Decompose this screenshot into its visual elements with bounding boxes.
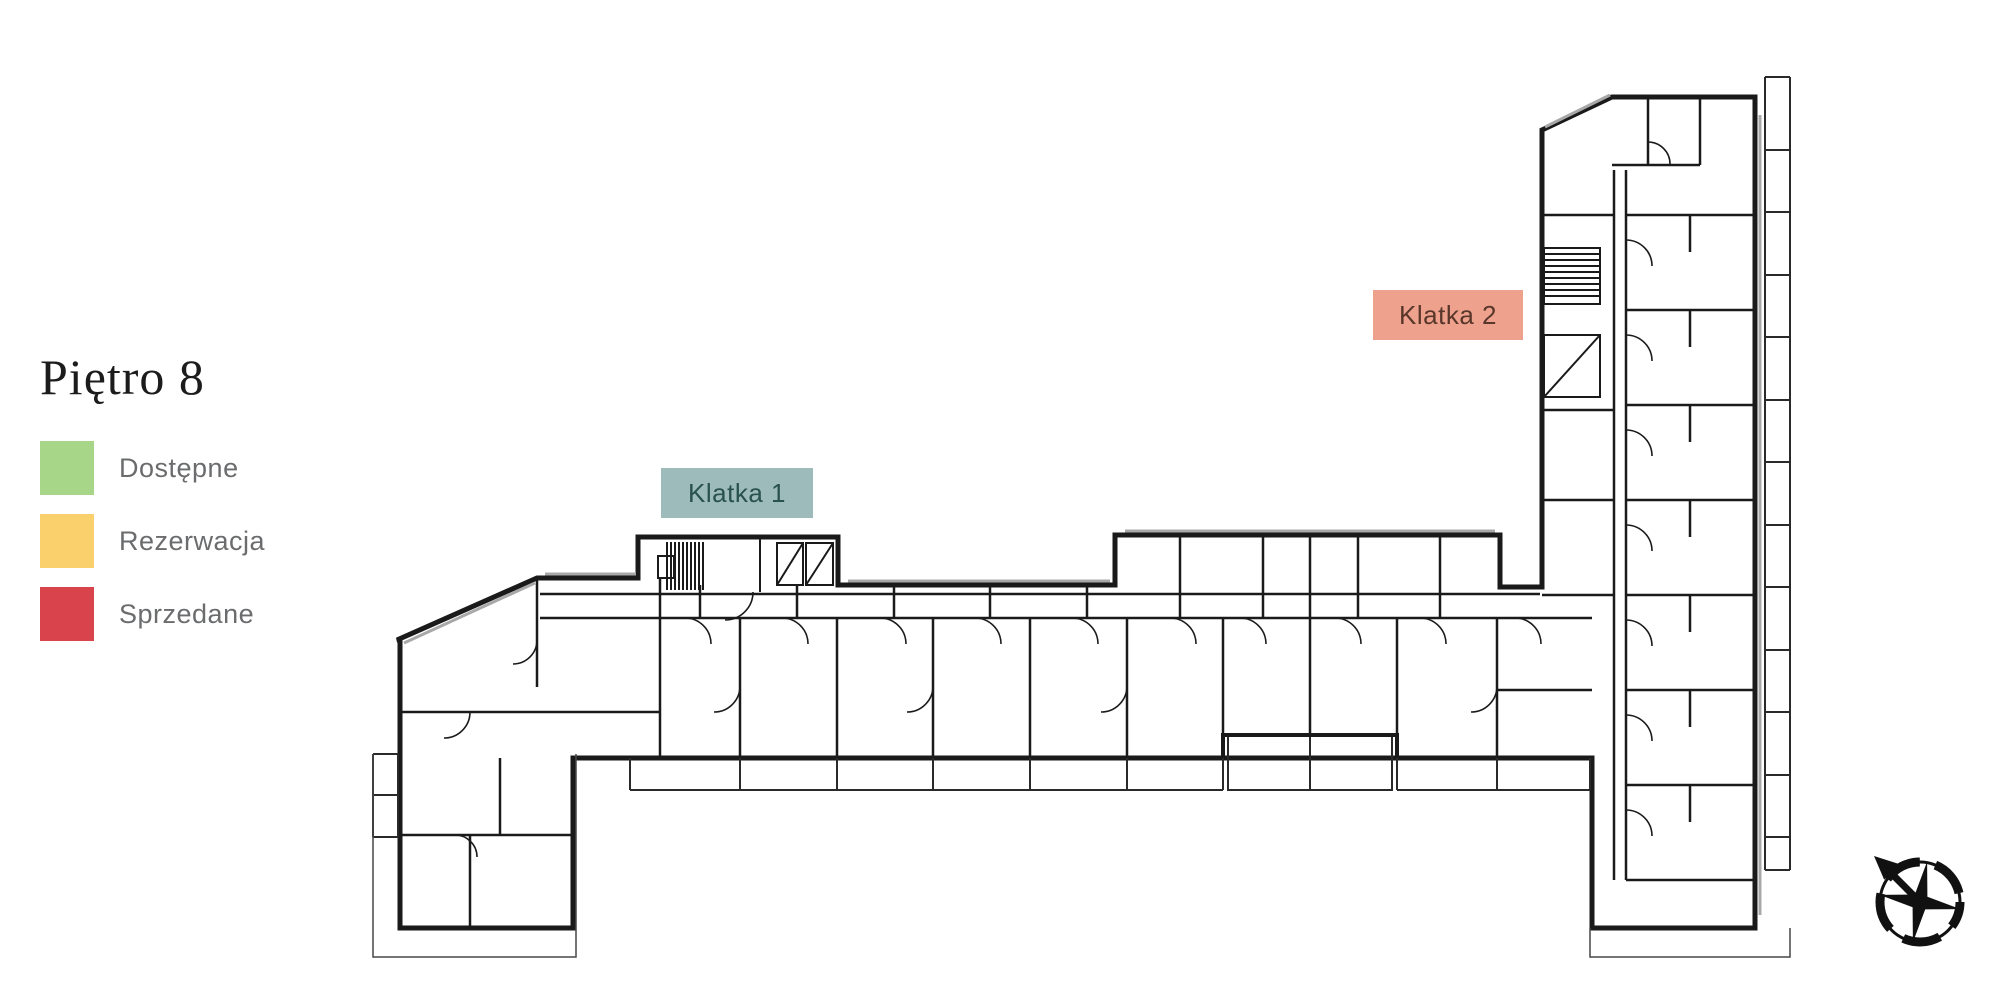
compass-icon (1866, 836, 1970, 952)
floor-plan: Klatka 1 Klatka 2 (0, 0, 2002, 984)
klatka-1-label[interactable]: Klatka 1 (661, 468, 813, 518)
corridor-walls (540, 170, 1626, 880)
exterior-walls (397, 97, 1755, 928)
floor-plan-page: Piętro 8 Dostępne Rezerwacja Sprzedane (0, 0, 2002, 984)
klatka-2-label[interactable]: Klatka 2 (1373, 290, 1523, 340)
floor-plan-drawing[interactable] (0, 0, 2002, 984)
terraces (373, 754, 1790, 957)
